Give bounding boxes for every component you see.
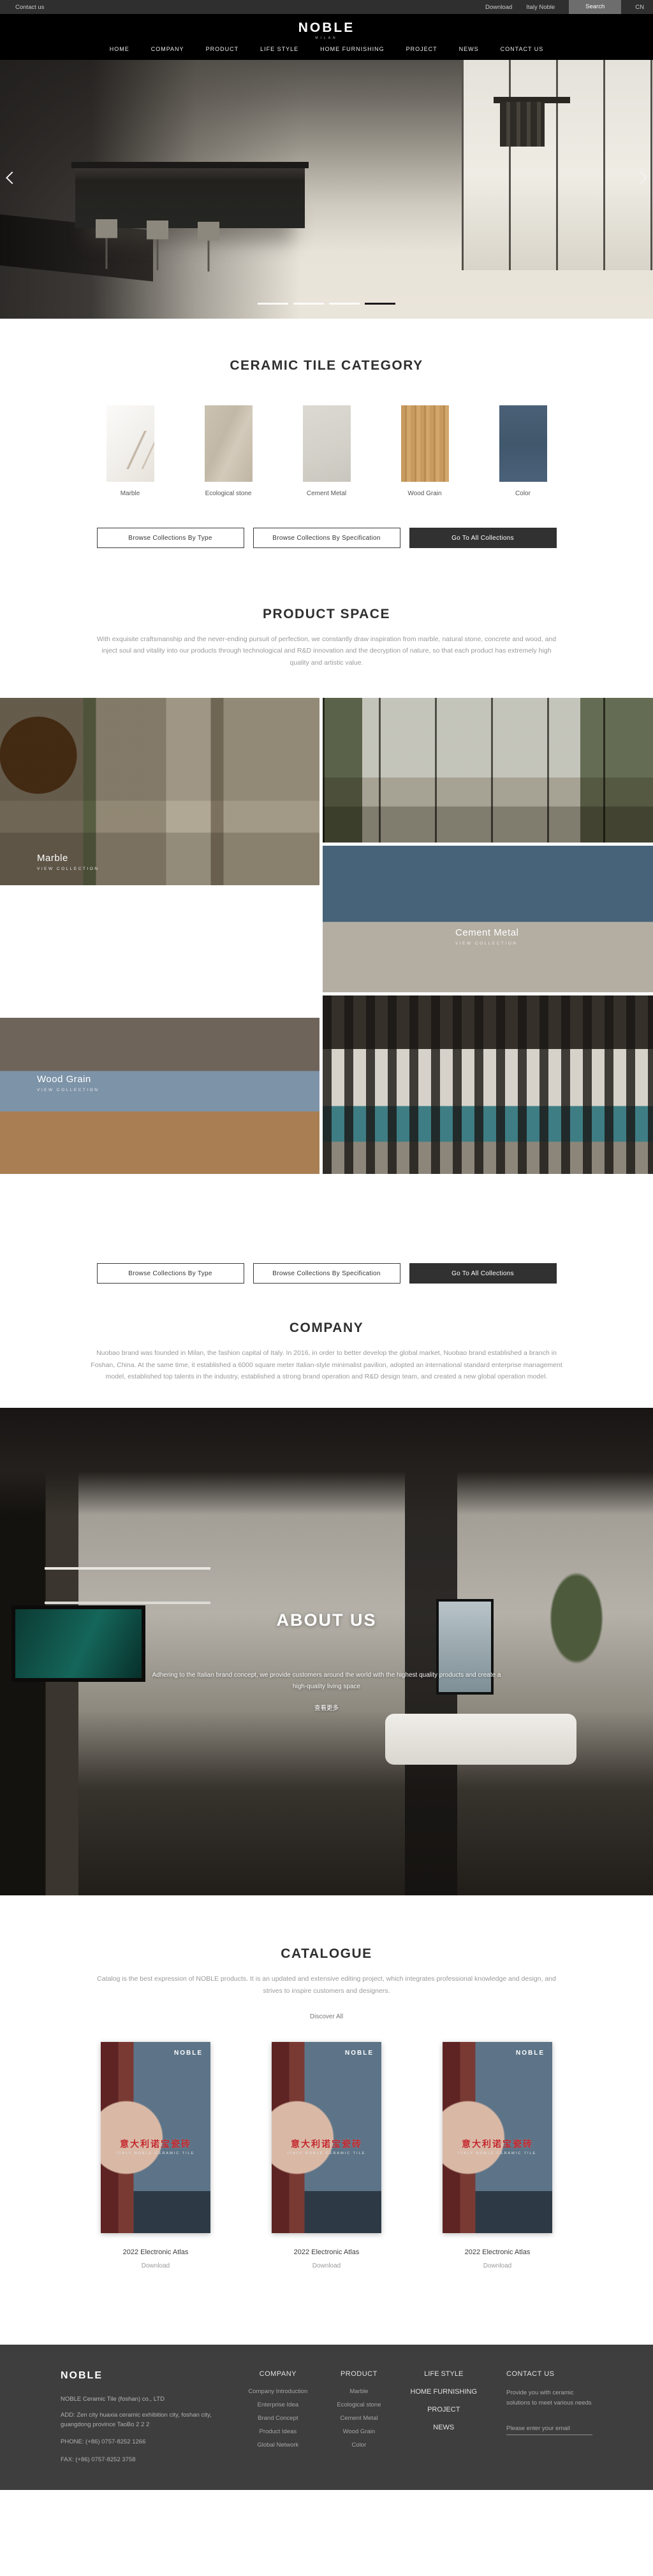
category-section: CERAMIC TILE CATEGORY Marble Ecological … [0, 319, 653, 548]
footer-column-sections: LIFE STYLE HOME FURNISHING PROJECT NEWS [411, 2370, 478, 2490]
footer-link[interactable]: Enterprise Idea [248, 2401, 307, 2408]
site-header: NOBLE MILAN HOME COMPANY PRODUCT LIFE ST… [0, 14, 653, 60]
footer-address: ADD: Zen city huaxia ceramic exhibition … [61, 2410, 217, 2429]
footer-column-company: COMPANY Company Introduction Enterprise … [248, 2370, 307, 2490]
wood-grain-overlay: Wood Grain VIEW COLLECTION [37, 1074, 99, 1092]
product-space-buttons: Browse Collections By Type Browse Collec… [0, 1263, 653, 1284]
logo-text: NOBLE [0, 20, 653, 36]
tile-color[interactable]: Color [499, 405, 547, 497]
download-link[interactable]: Download [443, 2262, 552, 2269]
footer-link-project[interactable]: PROJECT [411, 2406, 478, 2413]
product-space-title: PRODUCT SPACE [0, 607, 653, 622]
hero-clothes-rack-shape [494, 97, 570, 103]
nav-life-style[interactable]: LIFE STYLE [260, 46, 298, 52]
catalogue-description: Catalog is the best expression of NOBLE … [96, 1973, 557, 1997]
footer-link[interactable]: Cement Metal [337, 2415, 381, 2422]
cover-brand-text: NOBLE [345, 2050, 374, 2057]
nav-home-furnishing[interactable]: HOME FURNISHING [320, 46, 385, 52]
about-shelf-shape [45, 1567, 210, 1570]
logo[interactable]: NOBLE MILAN [0, 20, 653, 40]
topbar-right: Download Italy Noble Search CN [485, 0, 644, 14]
cover-title-text: 意大利诺宝瓷砖 [272, 2138, 381, 2150]
gallery-right-column: Cement Metal VIEW COLLECTION [323, 698, 653, 1174]
cement-metal-overlay: Cement Metal VIEW COLLECTION [455, 927, 518, 946]
overlay-label: Marble [37, 853, 99, 864]
tile-label: Marble [106, 490, 154, 497]
cover-subtitle-text: ITALY NOBLE CERAMIC TILE [101, 2152, 210, 2155]
footer-column-title[interactable]: CONTACT US [506, 2370, 592, 2378]
browse-by-specification-button[interactable]: Browse Collections By Specification [253, 528, 400, 548]
company-section: COMPANY Nuobao brand was founded in Mila… [0, 1284, 653, 1382]
color-swatch-image [499, 405, 547, 482]
cover-subtitle-text: ITALY NOBLE CERAMIC TILE [272, 2152, 381, 2155]
product-space-description: With exquisite craftsmanship and the nev… [96, 633, 557, 669]
nav-product[interactable]: PRODUCT [206, 46, 239, 52]
slide-indicator-2[interactable] [293, 303, 324, 305]
browse-by-specification-button[interactable]: Browse Collections By Specification [253, 1263, 400, 1284]
footer: NOBLE NOBLE Ceramic Tile (foshan) co., L… [0, 2345, 653, 2490]
footer-company-links: Company Introduction Enterprise Idea Bra… [248, 2388, 307, 2449]
catalogue-cover-image[interactable]: NOBLE 意大利诺宝瓷砖 ITALY NOBLE CERAMIC TILE [443, 2042, 552, 2233]
footer-link[interactable]: Brand Concept [248, 2415, 307, 2422]
italy-noble-link[interactable]: Italy Noble [526, 4, 555, 11]
footer-product-links: Marble Ecological stone Cement Metal Woo… [337, 2388, 381, 2449]
slider-next-arrow-icon[interactable] [634, 171, 650, 187]
gallery-image-teal-sofa[interactable] [323, 995, 653, 1174]
footer-company-name: NOBLE Ceramic Tile (foshan) co., LTD [61, 2396, 230, 2403]
chevron-right-icon [635, 171, 647, 184]
footer-link[interactable]: Color [337, 2442, 381, 2449]
view-collection-link[interactable]: VIEW COLLECTION [37, 867, 99, 871]
slide-indicator-1[interactable] [258, 303, 288, 305]
overlay-label: Cement Metal [455, 927, 518, 938]
download-link[interactable]: Download [101, 2262, 210, 2269]
gallery-image-cement-metal[interactable]: Cement Metal VIEW COLLECTION [323, 846, 653, 992]
tile-label: Ecological stone [205, 490, 253, 497]
nav-news[interactable]: NEWS [459, 46, 479, 52]
footer-contact-blurb: Provide you with ceramic solutions to me… [506, 2388, 592, 2408]
gallery-left-column: Marble VIEW COLLECTION Wood Grain VIEW C… [0, 698, 319, 1174]
catalogue-item-title: 2022 Electronic Atlas [101, 2248, 210, 2256]
footer-column-product: PRODUCT Marble Ecological stone Cement M… [337, 2370, 381, 2490]
footer-link[interactable]: Marble [337, 2388, 381, 2395]
tile-cement-metal[interactable]: Cement Metal [303, 405, 351, 497]
catalogue-section: CATALOGUE Catalog is the best expression… [0, 1895, 653, 2269]
footer-link[interactable]: Wood Grain [337, 2428, 381, 2435]
cover-subtitle-text: ITALY NOBLE CERAMIC TILE [443, 2152, 552, 2155]
tile-ecological-stone[interactable]: Ecological stone [205, 405, 253, 497]
marble-overlay: Marble VIEW COLLECTION [37, 853, 99, 871]
hero-stool-shape [198, 222, 219, 271]
cement-metal-swatch-image [303, 405, 351, 482]
chevron-left-icon [6, 171, 18, 184]
discover-all-link[interactable]: Discover All [310, 2013, 343, 2020]
download-link[interactable]: Download [272, 2262, 381, 2269]
about-title: ABOUT US [0, 1610, 653, 1630]
hero-slider [0, 60, 653, 319]
about-sofa-shape [385, 1714, 576, 1765]
slider-prev-arrow-icon[interactable] [3, 171, 19, 187]
topbar-left: Contact us [15, 4, 44, 11]
hero-stool-shape [147, 221, 168, 270]
footer-fax: FAX: (+86) 0757-8252 3758 [61, 2455, 217, 2464]
go-to-all-collections-button[interactable]: Go To All Collections [409, 528, 557, 548]
cover-brand-text: NOBLE [174, 2050, 203, 2057]
gallery-image-marble[interactable]: Marble VIEW COLLECTION [0, 698, 319, 885]
nav-home[interactable]: HOME [110, 46, 129, 52]
catalogue-title: CATALOGUE [0, 1946, 653, 1962]
language-switch-cn[interactable]: CN [635, 4, 644, 11]
slide-indicator-3[interactable] [329, 303, 360, 305]
tile-label: Cement Metal [303, 490, 351, 497]
tile-label: Wood Grain [401, 490, 449, 497]
browse-by-type-button[interactable]: Browse Collections By Type [97, 1263, 244, 1284]
wood-grain-swatch-image [401, 405, 449, 482]
gallery-image-glass-house[interactable] [323, 698, 653, 843]
gallery-image-living-room[interactable] [0, 888, 319, 1015]
footer-link[interactable]: Company Introduction [248, 2388, 307, 2395]
tile-marble[interactable]: Marble [106, 405, 154, 497]
footer-link[interactable]: Ecological stone [337, 2401, 381, 2408]
catalogue-item-title: 2022 Electronic Atlas [443, 2248, 552, 2256]
search-button[interactable]: Search [569, 0, 621, 14]
main-navigation: HOME COMPANY PRODUCT LIFE STYLE HOME FUR… [0, 46, 653, 52]
category-buttons: Browse Collections By Type Browse Collec… [0, 528, 653, 548]
tile-label: Color [499, 490, 547, 497]
view-collection-link[interactable]: VIEW COLLECTION [455, 941, 518, 946]
view-more-link[interactable]: 查看更多 [314, 1703, 339, 1712]
overlay-label: Wood Grain [37, 1074, 99, 1085]
slide-indicator-4-active[interactable] [365, 303, 395, 305]
product-space-gallery: Marble VIEW COLLECTION Wood Grain VIEW C… [0, 698, 653, 1174]
catalogue-item: NOBLE 意大利诺宝瓷砖 ITALY NOBLE CERAMIC TILE 2… [101, 2042, 210, 2269]
cover-brand-text: NOBLE [516, 2050, 545, 2057]
footer-company-info: NOBLE NOBLE Ceramic Tile (foshan) co., L… [61, 2370, 230, 2490]
marble-swatch-image [106, 405, 154, 482]
download-link[interactable]: Download [485, 4, 512, 11]
cover-title-text: 意大利诺宝瓷砖 [101, 2138, 210, 2150]
product-space-section: PRODUCT SPACE With exquisite craftsmansh… [0, 548, 653, 1284]
catalogue-cover-image[interactable]: NOBLE 意大利诺宝瓷砖 ITALY NOBLE CERAMIC TILE [101, 2042, 210, 2233]
top-utility-bar: Contact us Download Italy Noble Search C… [0, 0, 653, 14]
ecological-stone-swatch-image [205, 405, 253, 482]
company-description: Nuobao brand was founded in Milan, the f… [91, 1347, 562, 1382]
catalogue-item-title: 2022 Electronic Atlas [272, 2248, 381, 2256]
footer-link-news[interactable]: NEWS [411, 2424, 478, 2431]
category-title: CERAMIC TILE CATEGORY [0, 358, 653, 373]
nav-company[interactable]: COMPANY [151, 46, 184, 52]
footer-logo: NOBLE [61, 2370, 230, 2382]
view-collection-link[interactable]: VIEW COLLECTION [37, 1088, 99, 1092]
catalogue-item: NOBLE 意大利诺宝瓷砖 ITALY NOBLE CERAMIC TILE 2… [272, 2042, 381, 2269]
tile-swatches: Marble Ecological stone Cement Metal Woo… [0, 405, 653, 497]
nav-project[interactable]: PROJECT [406, 46, 437, 52]
hero-stool-shape [96, 219, 117, 269]
catalogue-covers: NOBLE 意大利诺宝瓷砖 ITALY NOBLE CERAMIC TILE 2… [0, 2042, 653, 2269]
hero-window-shape [462, 60, 653, 270]
contact-us-link[interactable]: Contact us [15, 4, 44, 11]
footer-column-title[interactable]: COMPANY [248, 2370, 307, 2378]
company-title: COMPANY [0, 1321, 653, 1336]
footer-column-contact: CONTACT US Provide you with ceramic solu… [506, 2370, 592, 2490]
footer-link-home-furnishing[interactable]: HOME FURNISHING [411, 2388, 478, 2396]
gallery-image-wood-grain[interactable]: Wood Grain VIEW COLLECTION [0, 1018, 319, 1174]
go-to-all-collections-button[interactable]: Go To All Collections [409, 1263, 557, 1284]
about-description: Adhering to the Italian brand concept, w… [148, 1670, 505, 1693]
footer-link-columns: COMPANY Company Introduction Enterprise … [248, 2370, 592, 2490]
nav-contact-us[interactable]: CONTACT US [501, 46, 544, 52]
about-us-section: ABOUT US Adhering to the Italian brand c… [0, 1408, 653, 1895]
footer-link-life-style[interactable]: LIFE STYLE [411, 2370, 478, 2378]
catalogue-cover-image[interactable]: NOBLE 意大利诺宝瓷砖 ITALY NOBLE CERAMIC TILE [272, 2042, 381, 2233]
footer-link[interactable]: Global Network [248, 2442, 307, 2449]
slider-indicators [0, 303, 653, 305]
footer-phone: PHONE: (+86) 0757-8252 1266 [61, 2437, 217, 2447]
footer-link[interactable]: Product Ideas [248, 2428, 307, 2435]
browse-by-type-button[interactable]: Browse Collections By Type [97, 528, 244, 548]
tile-wood-grain[interactable]: Wood Grain [401, 405, 449, 497]
about-copy: ABOUT US Adhering to the Italian brand c… [0, 1610, 653, 1713]
cover-title-text: 意大利诺宝瓷砖 [443, 2138, 552, 2150]
footer-column-title[interactable]: PRODUCT [337, 2370, 381, 2378]
logo-subtitle: MILAN [0, 36, 653, 40]
catalogue-item: NOBLE 意大利诺宝瓷砖 ITALY NOBLE CERAMIC TILE 2… [443, 2042, 552, 2269]
email-input[interactable] [506, 2422, 592, 2435]
